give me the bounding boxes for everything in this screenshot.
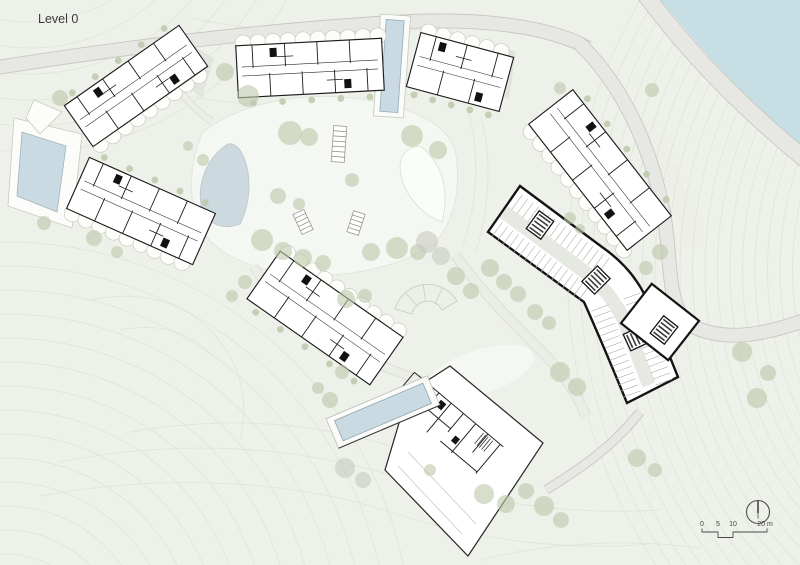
tree-symbol: [216, 63, 234, 81]
tree-symbol: [652, 244, 668, 260]
tree-symbol: [322, 392, 338, 408]
building-outline: [236, 38, 385, 98]
tree-symbol: [238, 275, 252, 289]
tree-symbol: [542, 316, 556, 330]
tree-symbol: [510, 286, 526, 302]
tree-symbol: [278, 121, 302, 145]
scale-tick-20: 20 m: [757, 521, 773, 528]
tree-symbol: [237, 85, 259, 107]
tree-symbol: [358, 289, 372, 303]
tree-symbol: [52, 90, 68, 106]
tree-symbol: [527, 304, 543, 320]
tree-symbol: [732, 342, 752, 362]
tree-symbol: [497, 495, 515, 513]
service-core: [269, 48, 276, 57]
site-plan-page: Level 0 0 5 10 20 m: [0, 0, 800, 565]
site-plan-canvas: Level 0 0 5 10 20 m: [0, 0, 800, 565]
tree-symbol: [337, 290, 355, 308]
tree-symbol: [648, 463, 662, 477]
tree-symbol: [463, 283, 479, 299]
tree-symbol: [294, 249, 312, 267]
tree-symbol: [645, 83, 659, 97]
tree-symbol: [335, 458, 355, 478]
tree-symbol: [300, 128, 318, 146]
tree-symbol: [362, 243, 380, 261]
scale-tick-5: 5: [716, 521, 720, 528]
tree-symbol: [628, 449, 646, 467]
tree-symbol: [86, 230, 102, 246]
tree-symbol: [639, 261, 653, 275]
tree-symbol: [447, 267, 465, 285]
tree-symbol: [345, 173, 359, 187]
tree-symbol: [293, 198, 305, 210]
tree-symbol: [553, 512, 569, 528]
tree-symbol: [274, 242, 292, 260]
tree-symbol: [568, 378, 586, 396]
tree-symbol: [760, 365, 776, 381]
tree-symbol: [474, 484, 494, 504]
tree-symbol: [111, 246, 123, 258]
tree-symbol: [37, 216, 51, 230]
tree-symbol: [183, 141, 193, 151]
tree-symbol: [355, 472, 371, 488]
tree-symbol: [554, 82, 566, 94]
tree-symbol: [335, 365, 349, 379]
tree-symbol: [747, 388, 767, 408]
tree-symbol: [550, 362, 570, 382]
service-core: [344, 79, 351, 88]
tree-symbol: [315, 255, 331, 271]
tree-symbol: [312, 382, 324, 394]
tree-symbol: [432, 247, 450, 265]
tree-symbol: [197, 154, 209, 166]
level-label: Level 0: [38, 12, 78, 26]
tree-symbol: [564, 212, 576, 224]
tree-symbol: [496, 274, 512, 290]
tree-symbol: [481, 259, 499, 277]
stair-symbol: [331, 126, 346, 163]
tree-symbol: [518, 483, 534, 499]
scale-tick-0: 0: [700, 521, 704, 528]
tree-symbol: [575, 224, 585, 234]
scale-tick-10: 10: [729, 521, 737, 528]
tree-symbol: [424, 464, 436, 476]
tree-symbol: [226, 290, 238, 302]
tree-symbol: [401, 125, 423, 147]
tree-symbol: [251, 229, 273, 251]
tree-symbol: [429, 141, 447, 159]
tree-symbol: [270, 188, 286, 204]
tree-symbol: [534, 496, 554, 516]
tree-symbol: [386, 237, 408, 259]
